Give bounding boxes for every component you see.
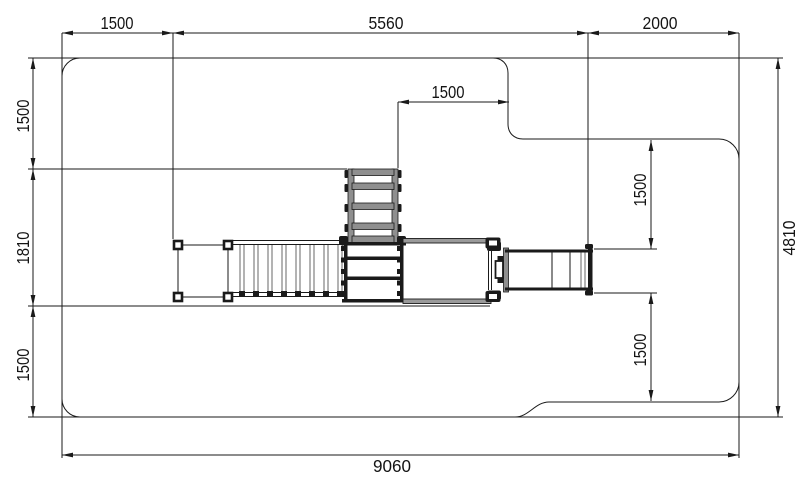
frame-post [224,293,232,301]
dim-top-right-label: 2000 [643,13,678,33]
dim-notch-label: 1500 [432,82,465,102]
dim-right-upper-label: 1500 [630,173,650,206]
dim-top-left-label: 1500 [101,13,134,33]
dim-left-lower-label: 1500 [13,348,33,381]
frame-post [174,293,182,301]
dim-left-middle-label: 1810 [13,231,33,264]
dim-left-upper-label: 1500 [13,99,33,132]
connector-handle [496,261,504,278]
dim-right-lower-label: 1500 [630,333,650,366]
dim-bottom-overall-label: 9060 [373,456,411,476]
dim-right-overall-label: 4810 [779,220,799,255]
plan-drawing-page: 1500 5560 2000 1500 1810 1500 [0,0,800,478]
dim-top-middle-label: 5560 [369,13,404,33]
frame-post [224,241,232,249]
plan-drawing-canvas: 1500 5560 2000 1500 1810 1500 [0,0,800,478]
frame-post [174,241,182,249]
